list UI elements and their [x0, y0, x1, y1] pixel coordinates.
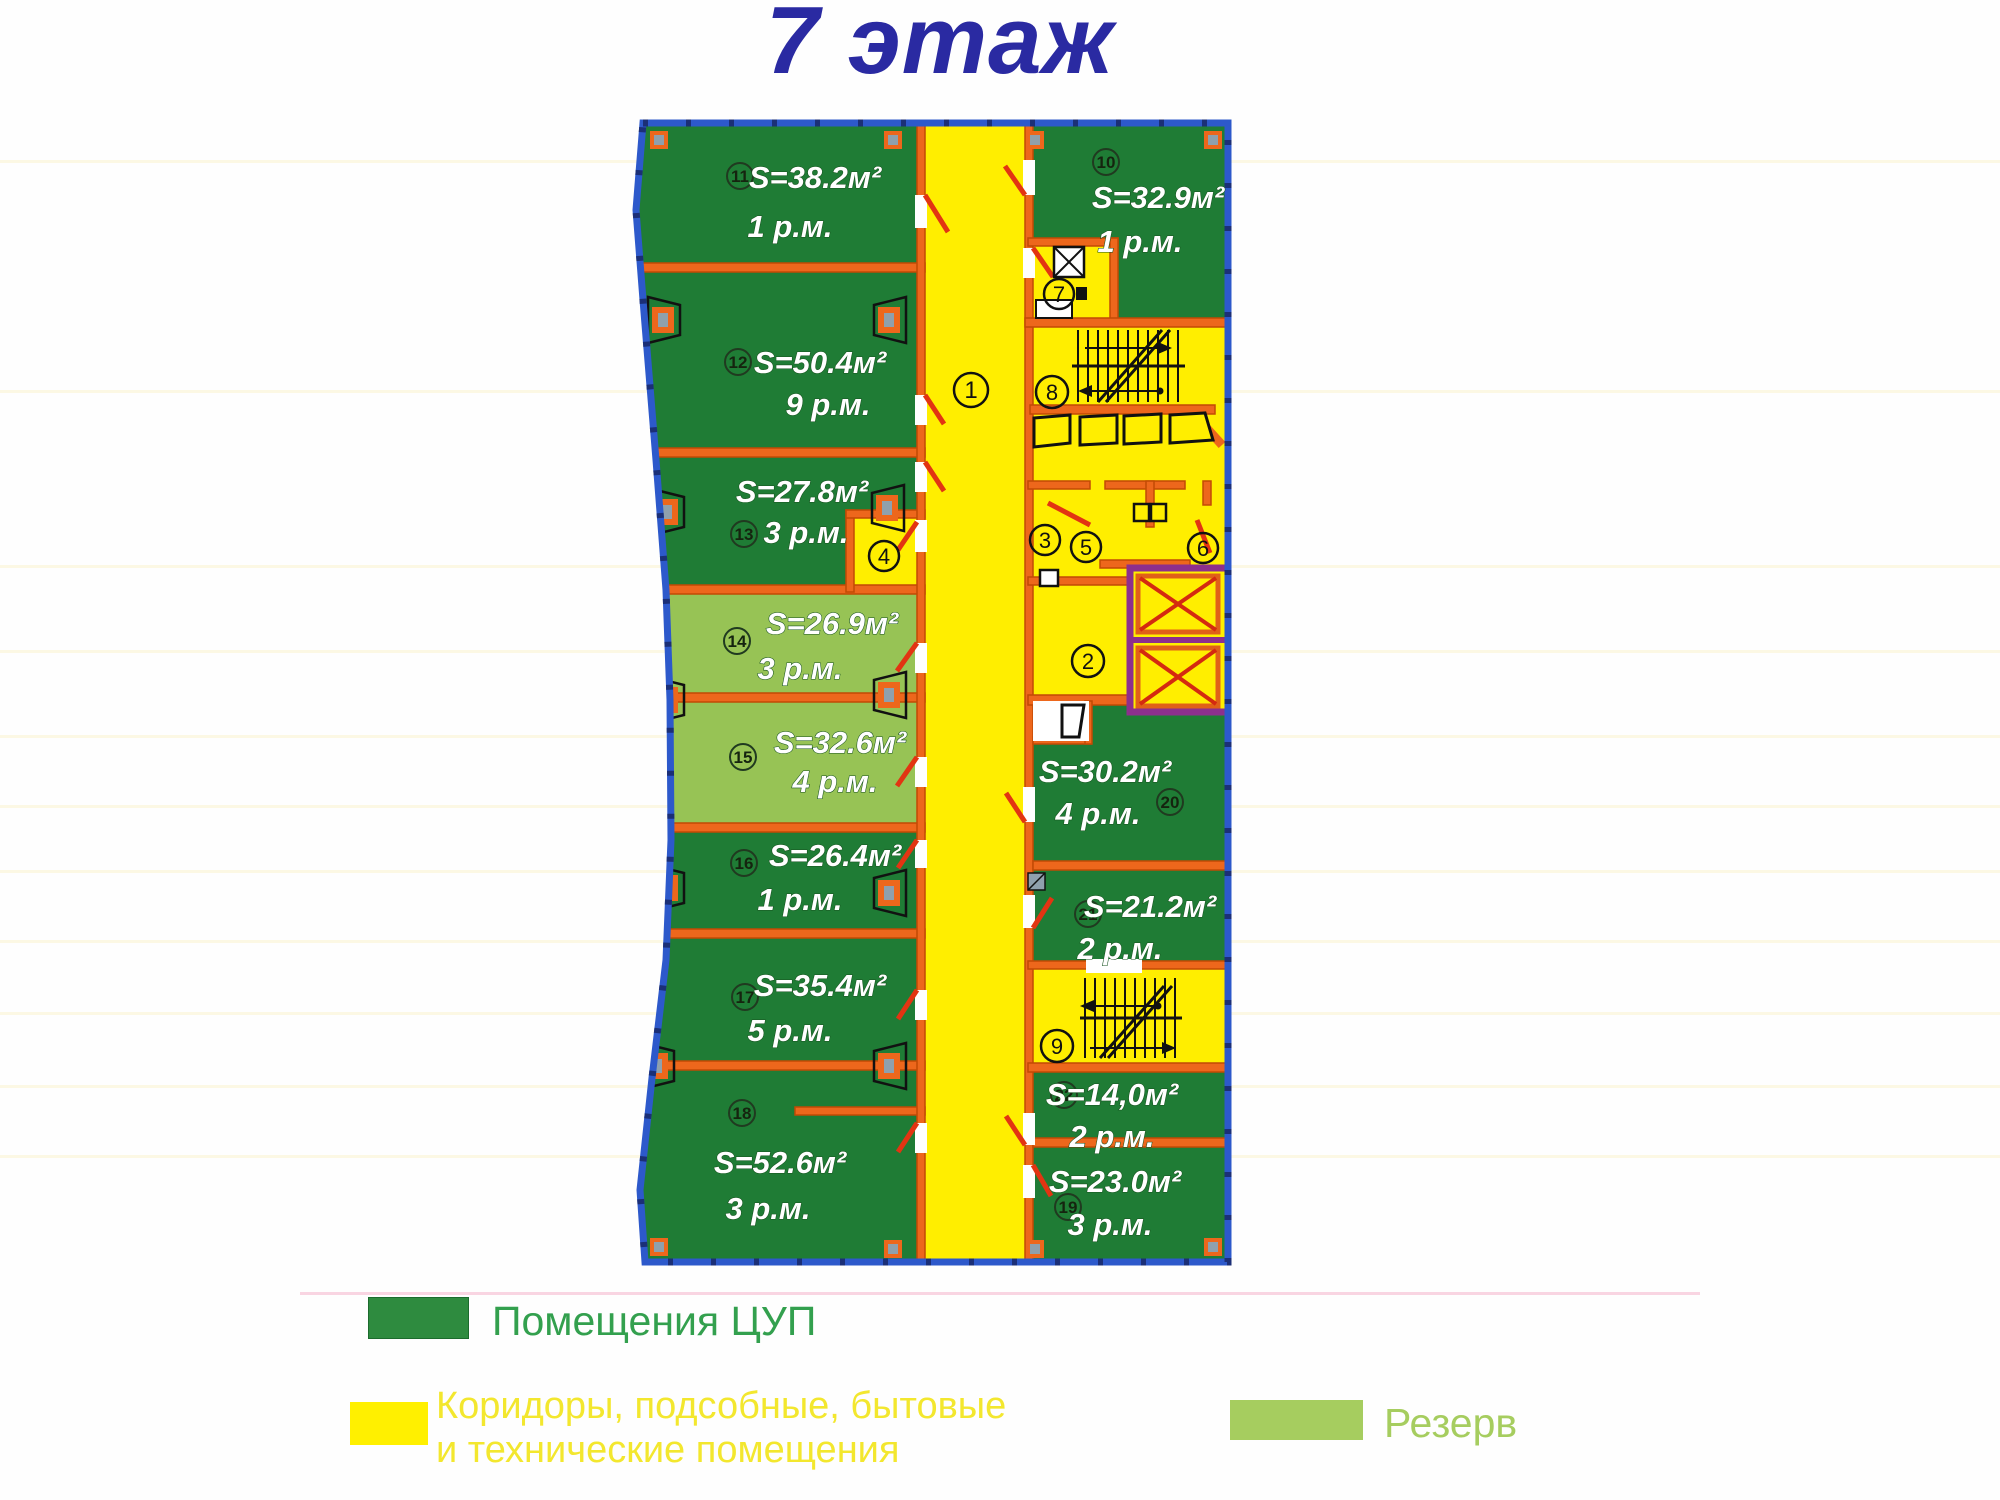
svg-text:4 р.м.: 4 р.м. — [1055, 796, 1141, 831]
staircase-upper — [1072, 330, 1185, 402]
elevator-block — [1130, 568, 1228, 712]
svg-text:3 р.м.: 3 р.м. — [764, 515, 849, 550]
room-20-niche — [1033, 701, 1089, 741]
svg-text:7: 7 — [1053, 282, 1065, 307]
legend-swatch-reserve — [1230, 1400, 1363, 1440]
svg-text:8: 8 — [1046, 380, 1058, 405]
svg-text:1 р.м.: 1 р.м. — [1098, 224, 1183, 259]
svg-text:6: 6 — [1197, 536, 1209, 561]
svg-text:S=52.6м²: S=52.6м² — [714, 1145, 847, 1180]
legend-swatch-corridors — [350, 1402, 428, 1445]
svg-text:20: 20 — [1161, 793, 1180, 812]
lobby-windows — [1034, 413, 1213, 447]
svg-text:5: 5 — [1080, 535, 1092, 560]
svg-text:S=32.9м²: S=32.9м² — [1092, 180, 1225, 215]
svg-text:12: 12 — [729, 353, 748, 372]
svg-text:14: 14 — [728, 632, 747, 651]
svg-text:S=32.6м²: S=32.6м² — [774, 725, 907, 760]
svg-text:16: 16 — [735, 854, 754, 873]
legend-swatch-cup — [368, 1297, 469, 1339]
svg-text:S=30.2м²: S=30.2м² — [1039, 754, 1172, 789]
svg-text:15: 15 — [734, 748, 753, 767]
svg-text:1 р.м.: 1 р.м. — [758, 882, 843, 917]
svg-text:3 р.м.: 3 р.м. — [726, 1191, 811, 1226]
svg-text:1: 1 — [964, 377, 977, 404]
room-15-area — [618, 700, 925, 830]
svg-text:5 р.м.: 5 р.м. — [748, 1013, 833, 1048]
svg-text:S=35.4м²: S=35.4м² — [754, 968, 887, 1003]
svg-text:3: 3 — [1039, 528, 1051, 553]
svg-text:S=21.2м²: S=21.2м² — [1084, 889, 1217, 924]
svg-text:17: 17 — [736, 988, 755, 1007]
svg-text:S=23.0м²: S=23.0м² — [1049, 1164, 1182, 1199]
legend-label-corridors: Коридоры, подсобные, бытовые и техническ… — [436, 1384, 1006, 1472]
svg-text:13: 13 — [735, 525, 754, 544]
svg-text:3 р.м.: 3 р.м. — [758, 651, 843, 686]
svg-text:10: 10 — [1097, 153, 1116, 172]
legend-label-reserve: Резерв — [1384, 1400, 1517, 1447]
page: 7 этаж — [0, 0, 2000, 1500]
legend-label-corridors-line2: и технические помещения — [436, 1428, 1006, 1472]
legend-label-cup: Помещения ЦУП — [492, 1298, 816, 1345]
svg-text:S=26.4м²: S=26.4м² — [769, 838, 902, 873]
door-icon — [1062, 705, 1084, 737]
svg-text:S=27.8м²: S=27.8м² — [736, 474, 869, 509]
svg-text:2 р.м.: 2 р.м. — [1069, 1119, 1155, 1154]
svg-text:9 р.м.: 9 р.м. — [786, 387, 871, 422]
svg-text:2: 2 — [1082, 649, 1094, 674]
svg-text:4: 4 — [878, 544, 890, 569]
door-icon — [1040, 570, 1058, 586]
svg-text:S=38.2м²: S=38.2м² — [749, 160, 882, 195]
svg-text:4 р.м.: 4 р.м. — [792, 764, 878, 799]
svg-text:11: 11 — [731, 167, 749, 186]
svg-text:9: 9 — [1051, 1034, 1063, 1059]
svg-text:S=14,0м²: S=14,0м² — [1046, 1077, 1179, 1112]
svg-text:2 р.м.: 2 р.м. — [1077, 931, 1163, 966]
svg-text:S=26.9м²: S=26.9м² — [766, 606, 899, 641]
floor-plan: 11 S=38.2м² 1 р.м. 12 S=50.4м² 9 р.м. 13… — [0, 0, 2000, 1500]
svg-text:S=50.4м²: S=50.4м² — [754, 345, 887, 380]
svg-text:1 р.м.: 1 р.м. — [748, 209, 833, 244]
legend-label-corridors-line1: Коридоры, подсобные, бытовые — [436, 1384, 1006, 1428]
core-wc-icons — [1134, 504, 1166, 521]
door-icon — [1076, 287, 1087, 300]
svg-text:3 р.м.: 3 р.м. — [1068, 1207, 1153, 1242]
svg-text:18: 18 — [733, 1104, 752, 1123]
